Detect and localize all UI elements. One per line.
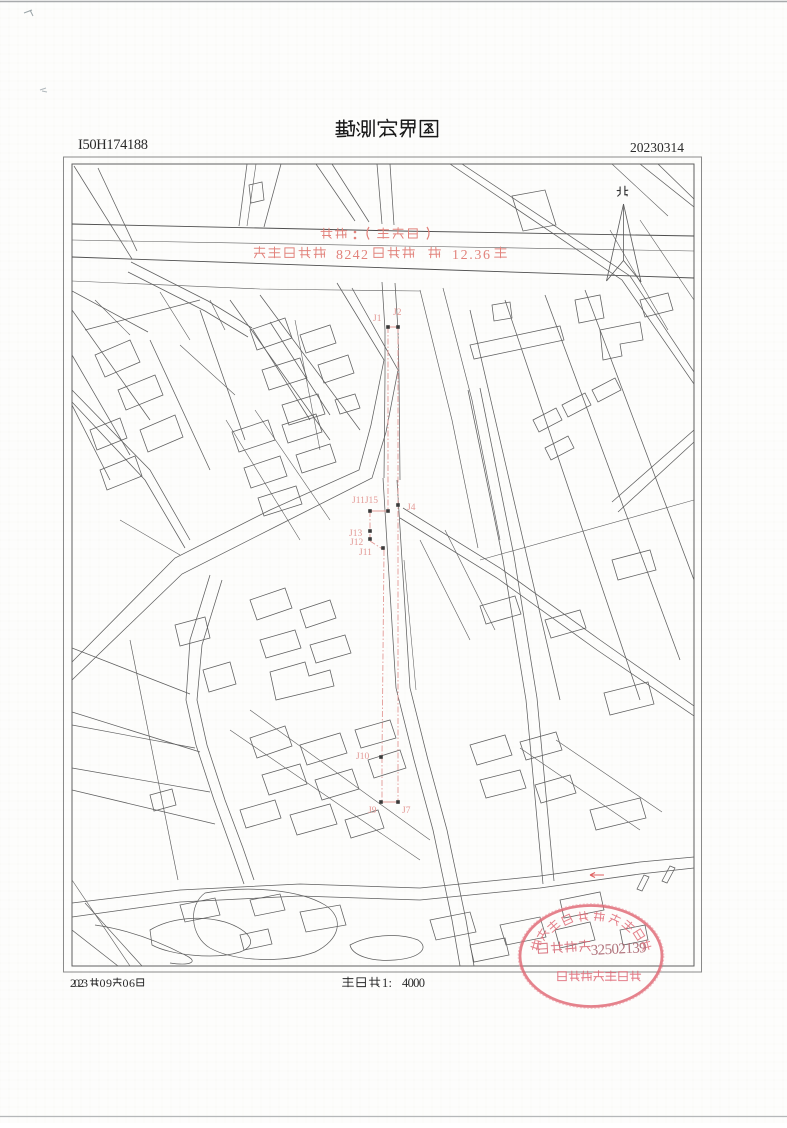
svg-text:J12: J12 [350,538,363,548]
svg-text:20230314: 20230314 [630,140,684,155]
svg-text:12.36: 12.36 [452,248,490,263]
svg-text:J7: J7 [402,806,411,816]
svg-text:J9: J9 [368,806,377,816]
svg-text:06: 06 [123,976,136,990]
svg-text:32502139: 32502139 [590,940,647,959]
svg-text:09: 09 [100,976,113,990]
svg-text:J10: J10 [356,752,369,762]
svg-text:J2: J2 [393,308,402,318]
svg-text:4000: 4000 [402,976,425,990]
svg-text:I50H174188: I50H174188 [78,137,148,153]
svg-text:J4: J4 [407,503,416,513]
svg-text:2023: 2023 [70,976,88,990]
svg-text:J1: J1 [373,314,382,324]
svg-text:J11J15: J11J15 [352,496,378,506]
svg-text:1:: 1: [382,976,392,990]
svg-text:J11: J11 [359,548,372,558]
svg-text:8242: 8242 [336,248,368,263]
